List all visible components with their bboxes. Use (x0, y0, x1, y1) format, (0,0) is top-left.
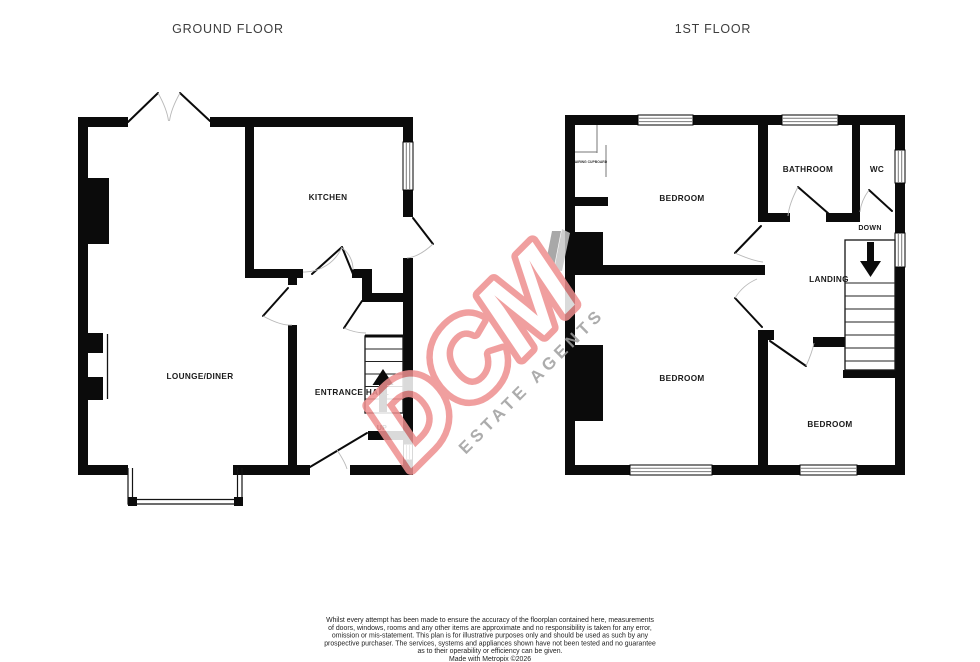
lounge-door-icon (263, 288, 292, 325)
airing-cupboard-label: AIRING CUPBOARD (575, 160, 608, 164)
disclaimer: Whilst every attempt has been made to en… (324, 617, 656, 662)
bedroom-front-window-icon (638, 115, 693, 125)
bedroom-back-window-icon (800, 465, 857, 475)
down-arrow-icon (860, 242, 881, 277)
ground-floor-windows (128, 142, 413, 506)
first-floor-plan: 1ST FLOOR (565, 22, 905, 475)
first-floor-walls (565, 115, 905, 475)
disclaimer-line: prospective purchaser. The services, sys… (324, 640, 656, 647)
disclaimer-line: of doors, windows, rooms and any other i… (328, 625, 652, 632)
disclaimer-line: omission or mis-statement. This plan is … (332, 633, 649, 640)
wc-door-icon (860, 190, 892, 212)
bathroom-window-icon (782, 115, 838, 125)
floorplan-page: GROUND FLOOR (0, 0, 980, 662)
disclaimer-line: Whilst every attempt has been made to en… (326, 617, 654, 624)
kitchen-door-icon (303, 247, 353, 274)
first-floor-title: 1ST FLOOR (675, 22, 751, 36)
disclaimer-line: as to their operability or efficiency ca… (417, 648, 562, 655)
patio-double-door-icon (128, 93, 210, 122)
ground-floor-title: GROUND FLOOR (172, 22, 284, 36)
kitchen-side-window-icon (403, 142, 413, 190)
room-label-kitchen: KITCHEN (309, 193, 348, 202)
room-label-bedroom-back: BEDROOM (807, 420, 852, 429)
room-label-bathroom: BATHROOM (783, 165, 833, 174)
front-door-icon (310, 433, 367, 469)
side-entrance-door-icon (407, 218, 433, 258)
bedroom-front-door-icon (735, 226, 763, 262)
bathroom-door-icon (788, 187, 829, 216)
bedroom-middle-window-icon (630, 465, 712, 475)
first-floor-stairs (845, 240, 895, 370)
bedroom-back-door-icon (770, 341, 814, 366)
bay-window-icon (128, 468, 243, 506)
disclaimer-credit: Made with Metropix ©2026 (449, 655, 531, 662)
bedroom-middle-door-icon (735, 279, 762, 327)
wc-window-icon (895, 150, 905, 183)
understairs-door-icon (344, 301, 366, 333)
room-label-lounge-diner: LOUNGE/DINER (167, 372, 234, 381)
airing-cupboard: AIRING CUPBOARD (575, 125, 608, 177)
stairs-window-icon (895, 233, 905, 267)
room-label-bedroom-front: BEDROOM (659, 194, 704, 203)
room-label-bedroom-middle: BEDROOM (659, 374, 704, 383)
stairs-down-label: DOWN (858, 225, 881, 232)
floorplan-canvas: GROUND FLOOR (0, 0, 980, 662)
room-label-landing: LANDING (809, 275, 849, 284)
room-label-wc: WC (870, 165, 884, 174)
